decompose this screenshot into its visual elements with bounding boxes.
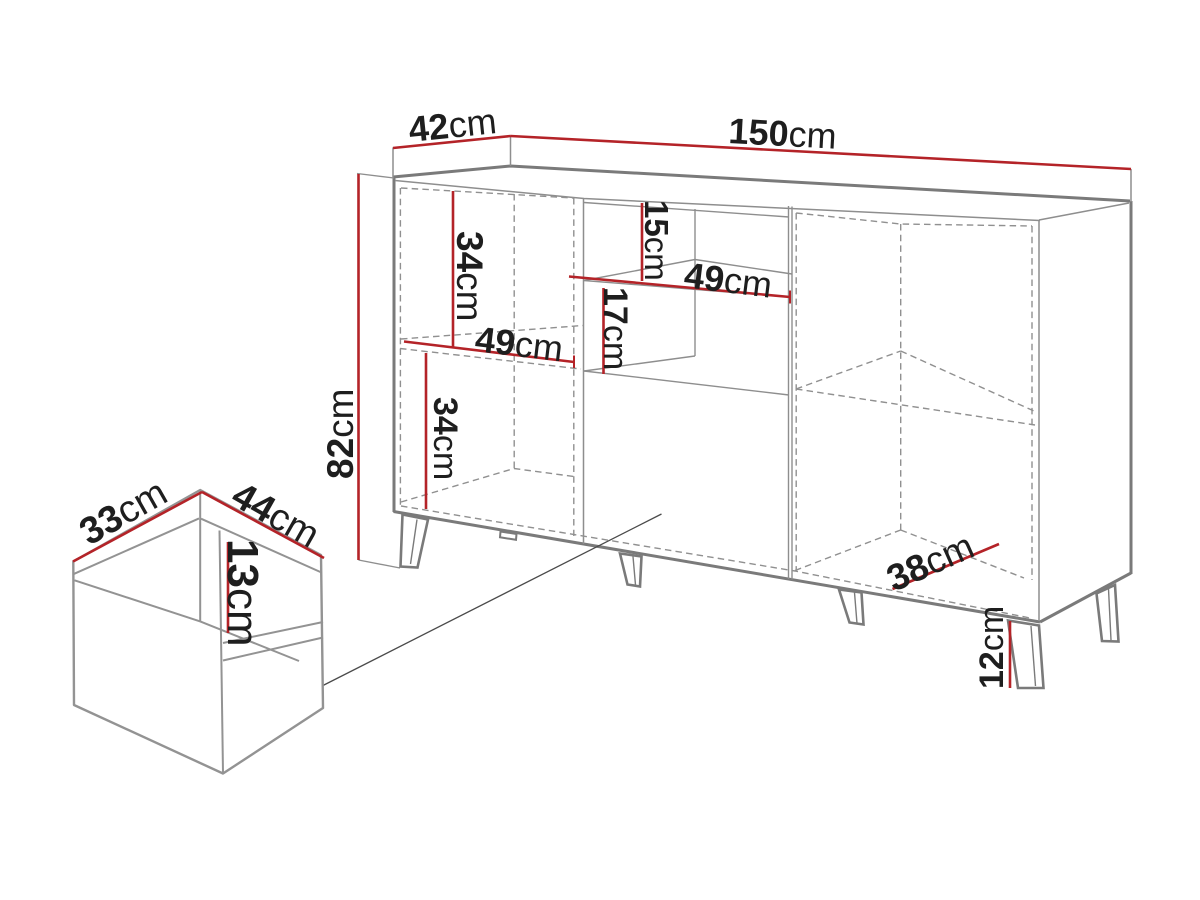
svg-text:17cm: 17cm xyxy=(596,287,634,370)
svg-text:12cm: 12cm xyxy=(973,606,1011,689)
svg-text:82cm: 82cm xyxy=(320,389,361,479)
svg-text:34cm: 34cm xyxy=(426,397,464,480)
svg-text:150cm: 150cm xyxy=(728,110,838,157)
svg-text:34cm: 34cm xyxy=(449,231,490,321)
svg-text:15cm: 15cm xyxy=(638,200,675,281)
svg-text:13cm: 13cm xyxy=(218,539,267,647)
